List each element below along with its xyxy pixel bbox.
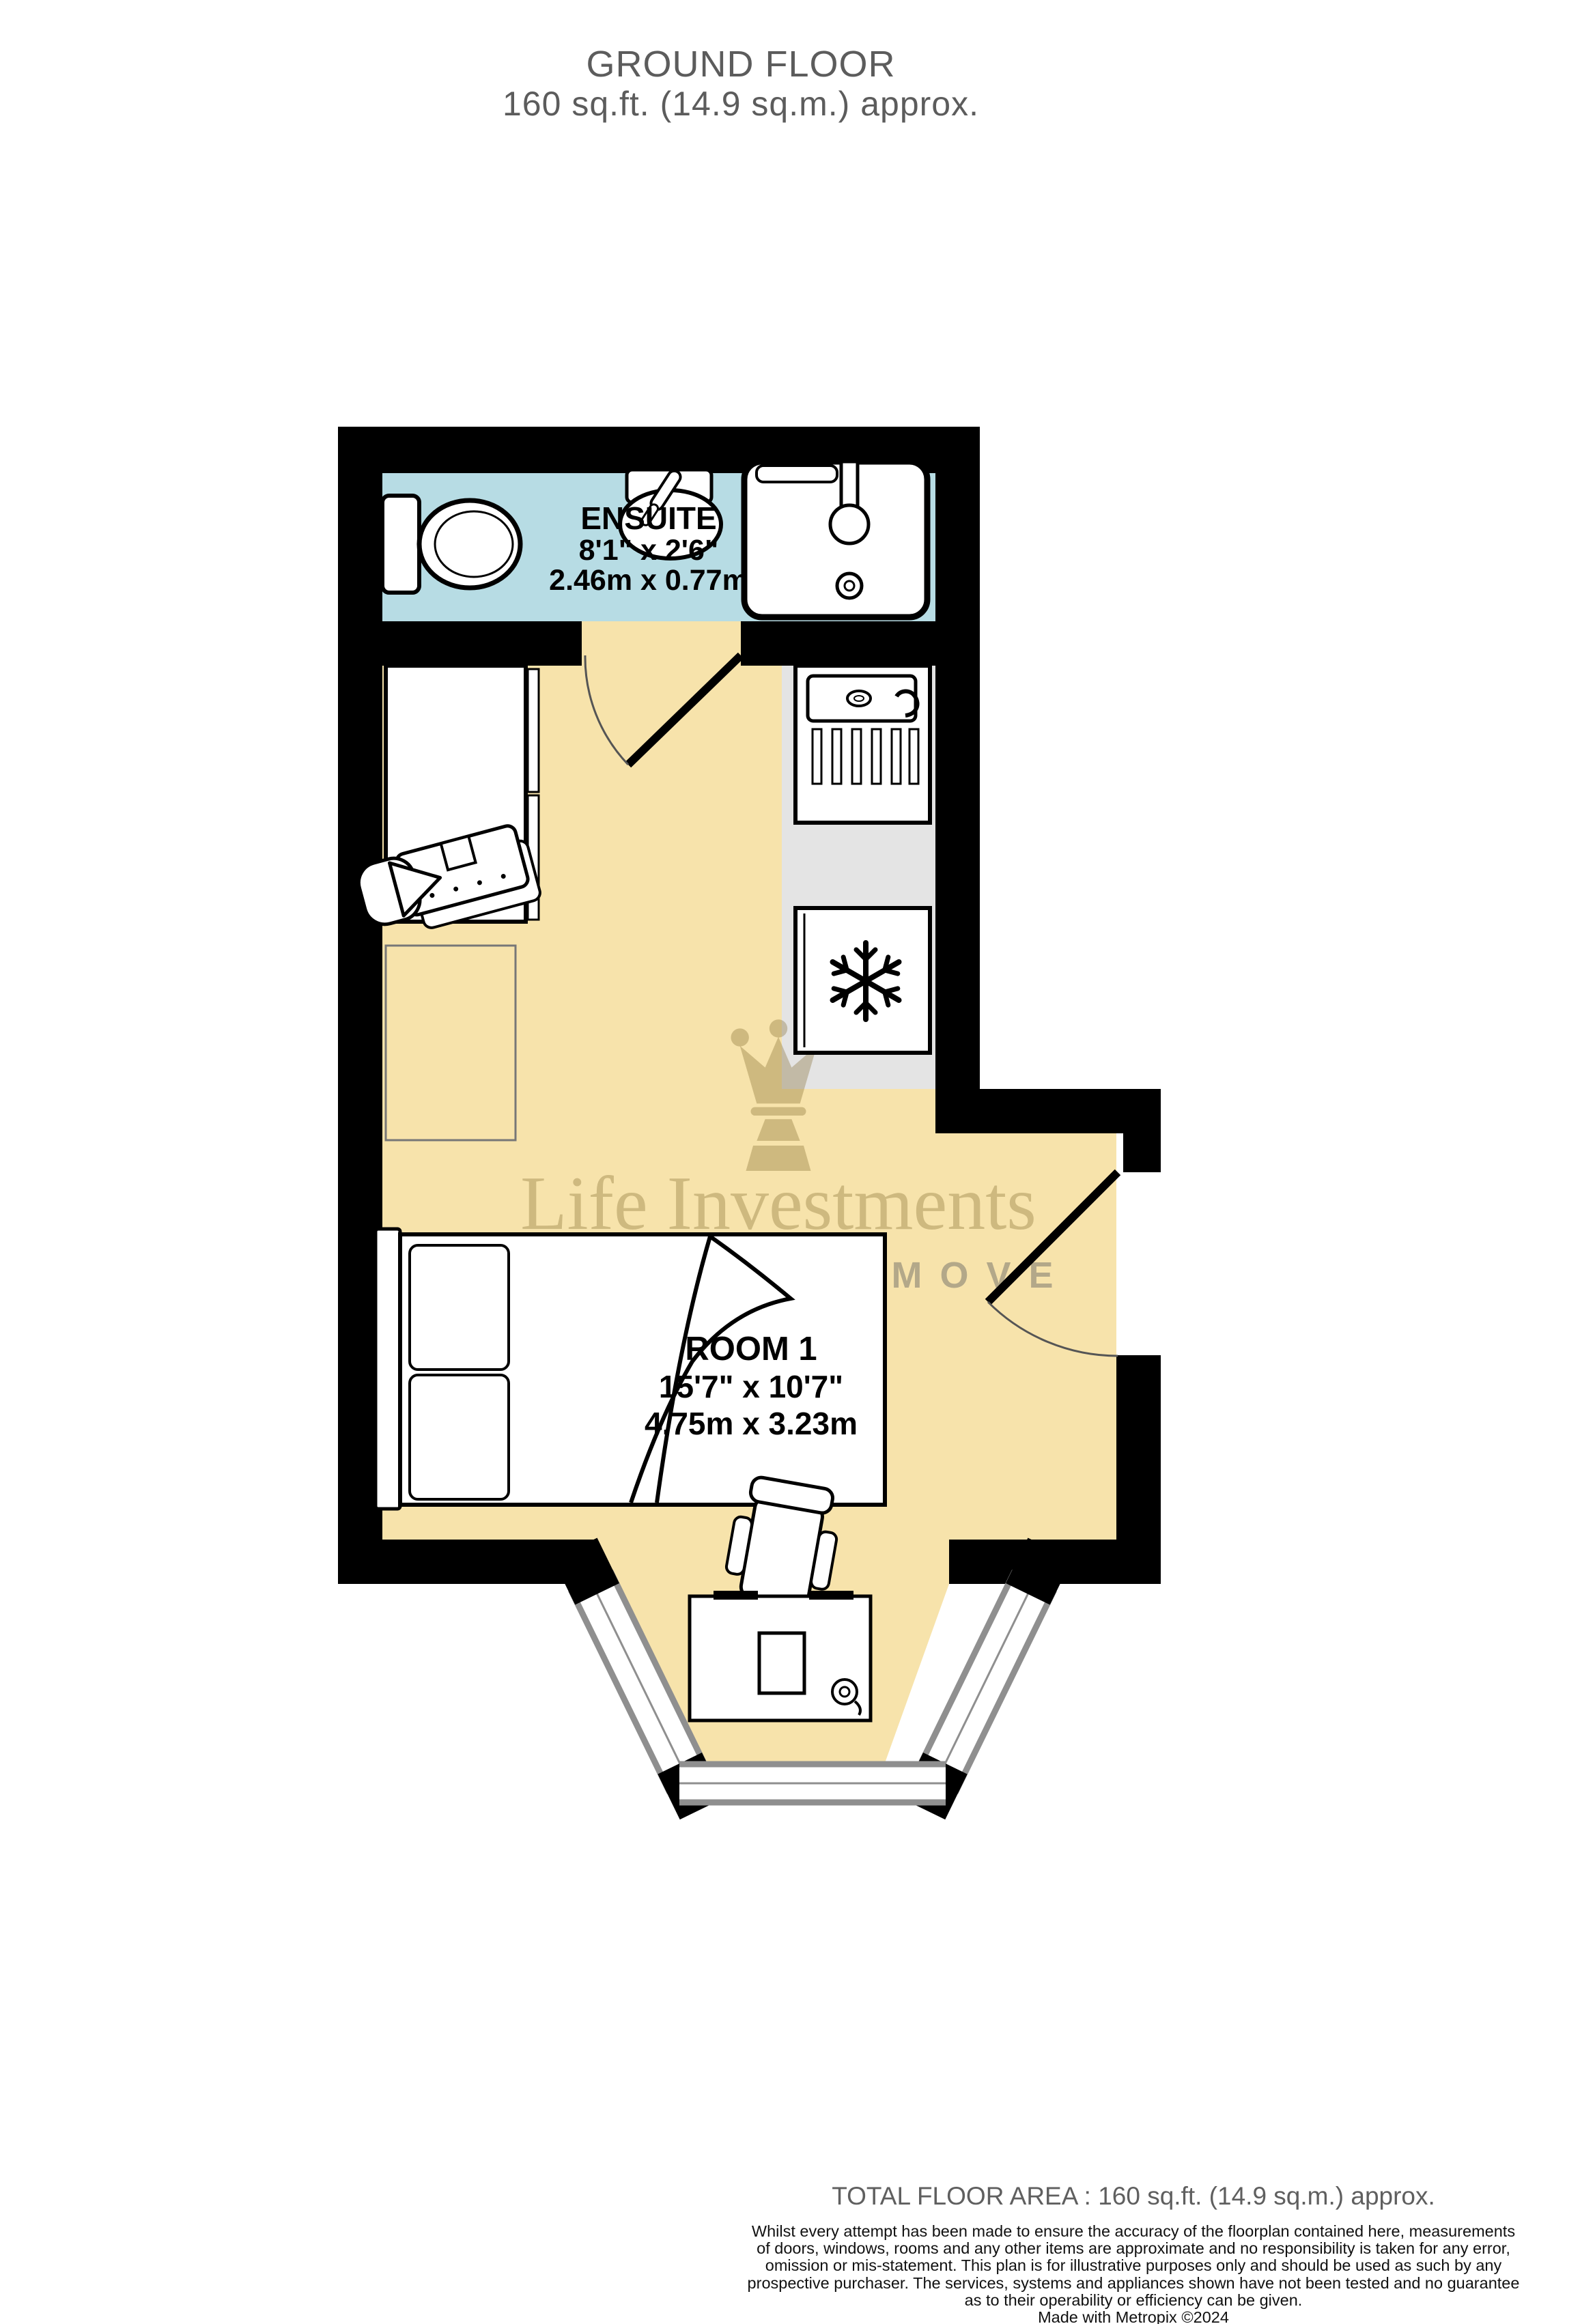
desk-monitor [441,836,476,870]
disclaimer-line: prospective purchaser. The services, sys… [451,2275,1595,2292]
room1-dims-imperial: 15'7" x 10'7" [659,1369,843,1404]
disclaimer-line: omission or mis-statement. This plan is … [451,2257,1595,2274]
disclaimer-line: of doors, windows, rooms and any other i… [451,2240,1595,2257]
disclaimer-line: Whilst every attempt has been made to en… [451,2223,1595,2240]
sink-unit [795,666,930,823]
wardrobe-door-strip [528,669,539,792]
room1-name: ROOM 1 [685,1331,817,1368]
freezer [795,908,930,1053]
shower-shelf [757,466,837,482]
disclaimer: Whilst every attempt has been made to en… [451,2223,1595,2324]
desk-tab [714,1591,758,1600]
wall-step-corner [1123,1089,1161,1172]
toilet-bowl-inner [435,511,513,577]
bed-pillow [410,1375,509,1499]
ensuite-name: ENSUITE [580,500,716,536]
toilet [382,496,520,593]
bed-pillow [410,1245,509,1370]
floorplan-drawing: Life Investments A SMARTER MOVE [0,0,1595,2324]
footer: TOTAL FLOOR AREA : 160 sq.ft. (14.9 sq.m… [451,2182,1595,2324]
window-frame-line [935,1581,1034,1783]
room1-dims-metric: 4.75m x 3.23m [645,1406,858,1441]
shower-pipe [841,462,858,507]
wall-ensuite-left [382,621,582,666]
disclaimer-line: as to their operability or efficiency ca… [451,2292,1595,2309]
bay-window-bottom [679,1762,946,1804]
wall-right-upper [935,427,980,1089]
wall-ensuite-right [741,621,935,666]
door-threshold-floor [582,621,741,666]
desk-monitor [759,1633,804,1693]
metropix-credit: Made with Metropix ©2024 [451,2309,1595,2324]
floorplan-page: GROUND FLOOR 160 sq.ft. (14.9 sq.m.) app… [0,0,1595,2324]
total-floor-area: TOTAL FLOOR AREA : 160 sq.ft. (14.9 sq.m… [451,2182,1595,2211]
sink-drain-inner [854,696,864,701]
shower-drain-inner [845,581,854,591]
toilet-cistern [382,496,419,593]
shower-head [830,505,869,543]
desk-tab [809,1591,853,1600]
ensuite-dims-metric: 2.46m x 0.77m [549,564,748,597]
bed-headboard [376,1229,400,1509]
ensuite-dims-imperial: 8'1" x 2'6" [579,534,719,567]
desk-mouse-inner [840,1687,849,1697]
shower [744,462,927,617]
